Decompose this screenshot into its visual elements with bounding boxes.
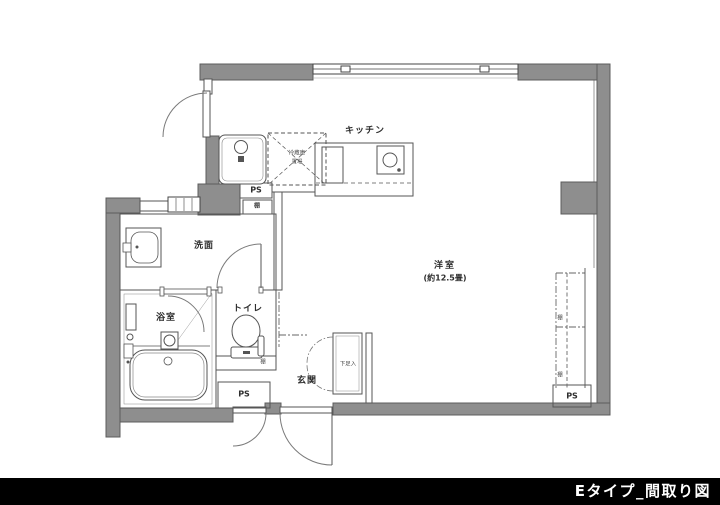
bathtub [124,293,212,400]
label-ps-right: PS [566,391,578,400]
label-shelf-niche-2: 棚 [556,373,563,379]
label-shelf-niche-1: 棚 [556,316,563,322]
label-shelf-top: 棚 [254,204,260,211]
label-entrance: 玄関 [297,376,317,386]
caption-bar: Eタイプ_間取り図 [0,478,720,505]
main-room-shelf-niche [556,268,585,388]
mirror-icon [126,304,136,330]
label-fridge-line1: 冷蔵庫 [289,151,305,157]
label-shoe-cabinet: 下足入 [339,362,357,368]
vanity-unit [123,228,161,267]
label-main-room: 洋室 [434,261,456,271]
toilet-icon [231,315,264,358]
caption-text: Eタイプ_間取り図 [575,478,711,505]
label-shelf-toilet: 棚 [259,360,266,366]
label-ps-top: PS [250,185,262,194]
label-main-room-size: (約12.5畳) [423,273,466,282]
label-ps-entry: PS [238,389,250,398]
floorplan-drawing [0,0,720,505]
window-top [313,64,518,78]
label-fridge-line2: 置場 [292,160,303,166]
kitchen-counter [315,143,413,196]
label-washroom: 洗面 [194,241,214,251]
label-toilet: トイレ [233,304,263,314]
label-kitchen: キッチン [345,126,385,136]
floorplan-image: キッチン 洋室 (約12.5畳) 洗面 浴室 トイレ 玄関 下足入 冷蔵庫 置場… [0,0,720,505]
faucet-icon [127,334,133,340]
window-washroom [168,197,200,212]
open-boundaries [279,268,585,388]
washing-machine-pan [219,135,266,184]
label-bathroom: 浴室 [155,313,177,323]
